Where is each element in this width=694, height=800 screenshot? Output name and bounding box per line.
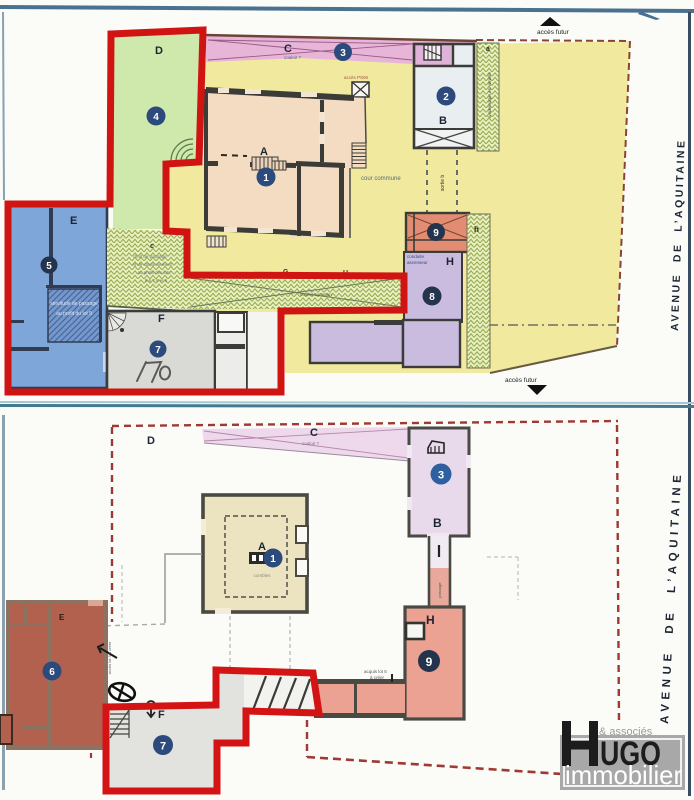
svg-text:H: H: [426, 613, 435, 627]
svg-text:E: E: [70, 215, 77, 227]
svg-text:4: 4: [153, 112, 159, 123]
svg-text:5 6 7 8 et 9: 5 6 7 8 et 9: [145, 278, 168, 283]
svg-text:1: 1: [263, 173, 269, 184]
svg-text:couloir commun: couloir commun: [300, 292, 332, 297]
svg-text:F: F: [158, 709, 165, 721]
svg-text:droit de passage: droit de passage: [133, 254, 167, 259]
svg-text:à aménager en venelle: à aménager en venelle: [487, 72, 492, 118]
svg-text:passage: passage: [437, 582, 442, 598]
svg-text:couloir ?: couloir ?: [302, 441, 320, 446]
svg-text:sortie b: sortie b: [440, 175, 446, 192]
svg-text:C: C: [284, 43, 292, 55]
svg-text:à créer: à créer: [370, 675, 385, 680]
svg-text:F: F: [158, 313, 165, 325]
svg-text:D: D: [147, 435, 155, 447]
svg-text:accès PS06: accès PS06: [344, 75, 369, 80]
svg-text:conduite: conduite: [407, 254, 425, 259]
svg-text:6: 6: [49, 667, 55, 678]
svg-text:1: 1: [270, 554, 276, 565]
svg-text:au profit du lot 9: au profit du lot 9: [56, 311, 92, 317]
svg-text:9: 9: [433, 228, 439, 239]
svg-text:A: A: [260, 146, 268, 158]
svg-text:D: D: [155, 45, 163, 57]
svg-text:C: C: [310, 427, 318, 439]
svg-text:a: a: [486, 46, 490, 53]
svg-text:B: B: [439, 115, 447, 127]
svg-text:cour commune: cour commune: [361, 176, 401, 182]
svg-text:au profit des lots: au profit des lots: [137, 270, 171, 275]
svg-text:8: 8: [429, 292, 435, 303]
svg-text:accès futur: accès futur: [537, 29, 570, 36]
svg-text:combles: combles: [254, 573, 272, 578]
svg-text:2: 2: [443, 92, 449, 103]
svg-text:3: 3: [438, 470, 444, 482]
svg-text:7: 7: [155, 345, 161, 356]
svg-text:H: H: [446, 256, 454, 268]
svg-text:h: h: [474, 225, 479, 234]
svg-text:5: 5: [46, 261, 52, 272]
svg-text:3: 3: [340, 48, 346, 59]
svg-text:immobilier: immobilier: [565, 760, 682, 790]
svg-text:couloir ?: couloir ?: [284, 55, 302, 60]
svg-text:9: 9: [426, 655, 433, 669]
svg-text:7: 7: [160, 741, 166, 753]
svg-text:A: A: [258, 541, 266, 553]
svg-text:accès lot 3 à créer: accès lot 3 à créer: [107, 641, 112, 674]
svg-text:B: B: [433, 516, 442, 530]
svg-text:ascenseur: ascenseur: [407, 260, 428, 265]
svg-text:servitude de passage: servitude de passage: [50, 301, 98, 307]
svg-text:accès futur: accès futur: [505, 377, 538, 384]
svg-text:& associés: & associés: [599, 726, 653, 738]
svg-text:c: c: [150, 243, 154, 250]
svg-text:et de stationnement: et de stationnement: [132, 262, 172, 267]
svg-text:E: E: [59, 613, 65, 622]
svg-text:acquis lot 5: acquis lot 5: [364, 669, 387, 674]
